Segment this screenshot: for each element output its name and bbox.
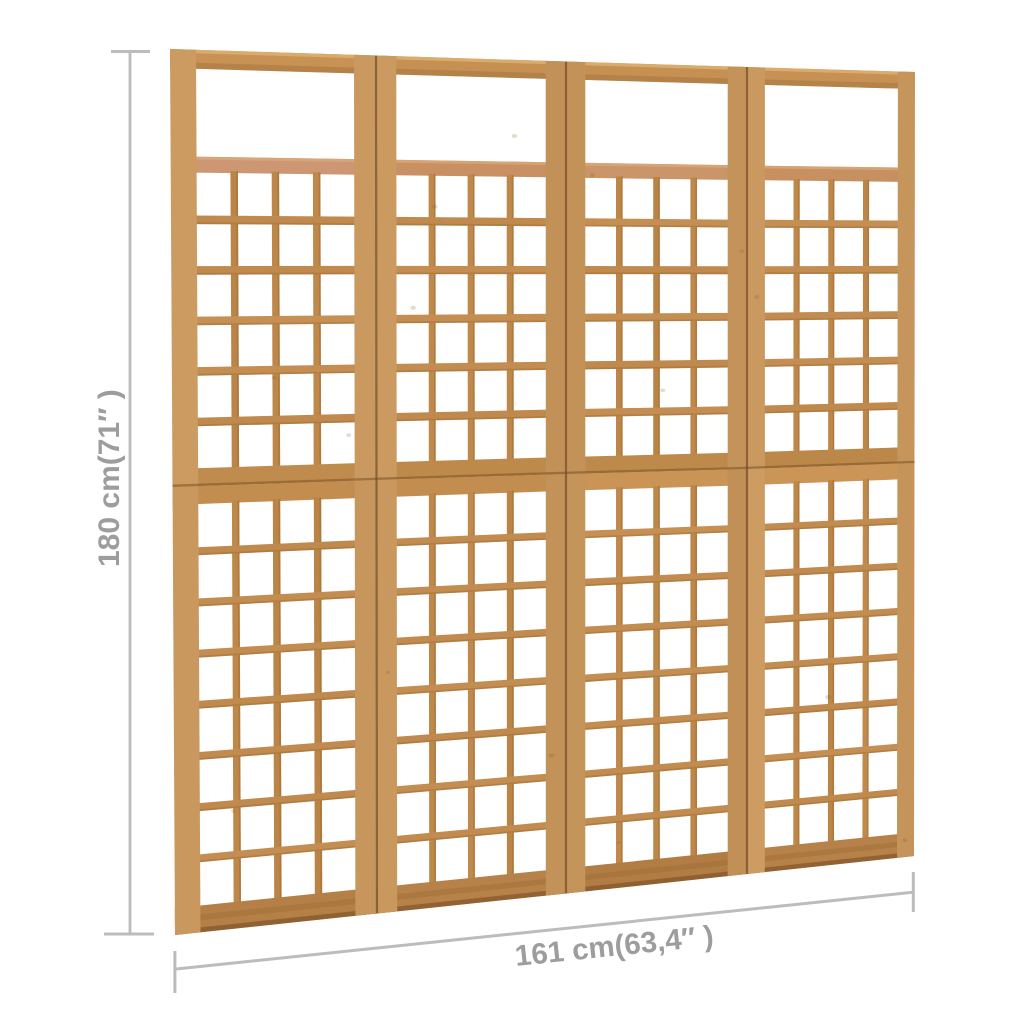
svg-text:180 cm(71″ ): 180 cm(71″ ) (93, 389, 126, 567)
